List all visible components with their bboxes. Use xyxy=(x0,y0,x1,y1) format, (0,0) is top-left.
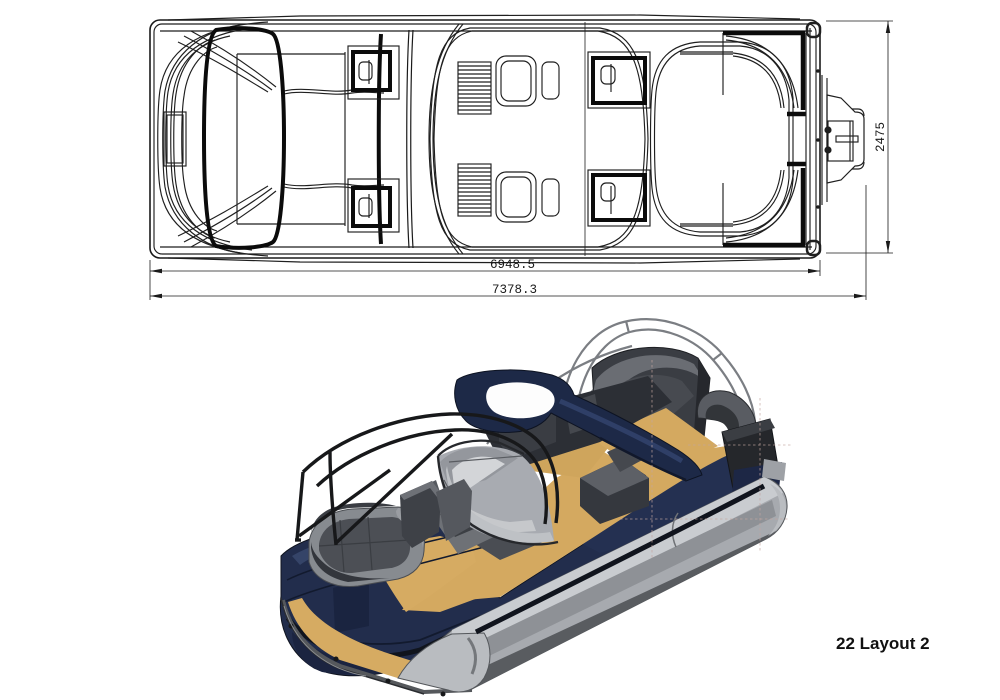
svg-text:7378.3: 7378.3 xyxy=(492,283,537,297)
svg-text:22 Layout 2: 22 Layout 2 xyxy=(836,634,930,653)
svg-text:6948.5: 6948.5 xyxy=(490,258,535,272)
svg-text:2475: 2475 xyxy=(874,122,888,152)
